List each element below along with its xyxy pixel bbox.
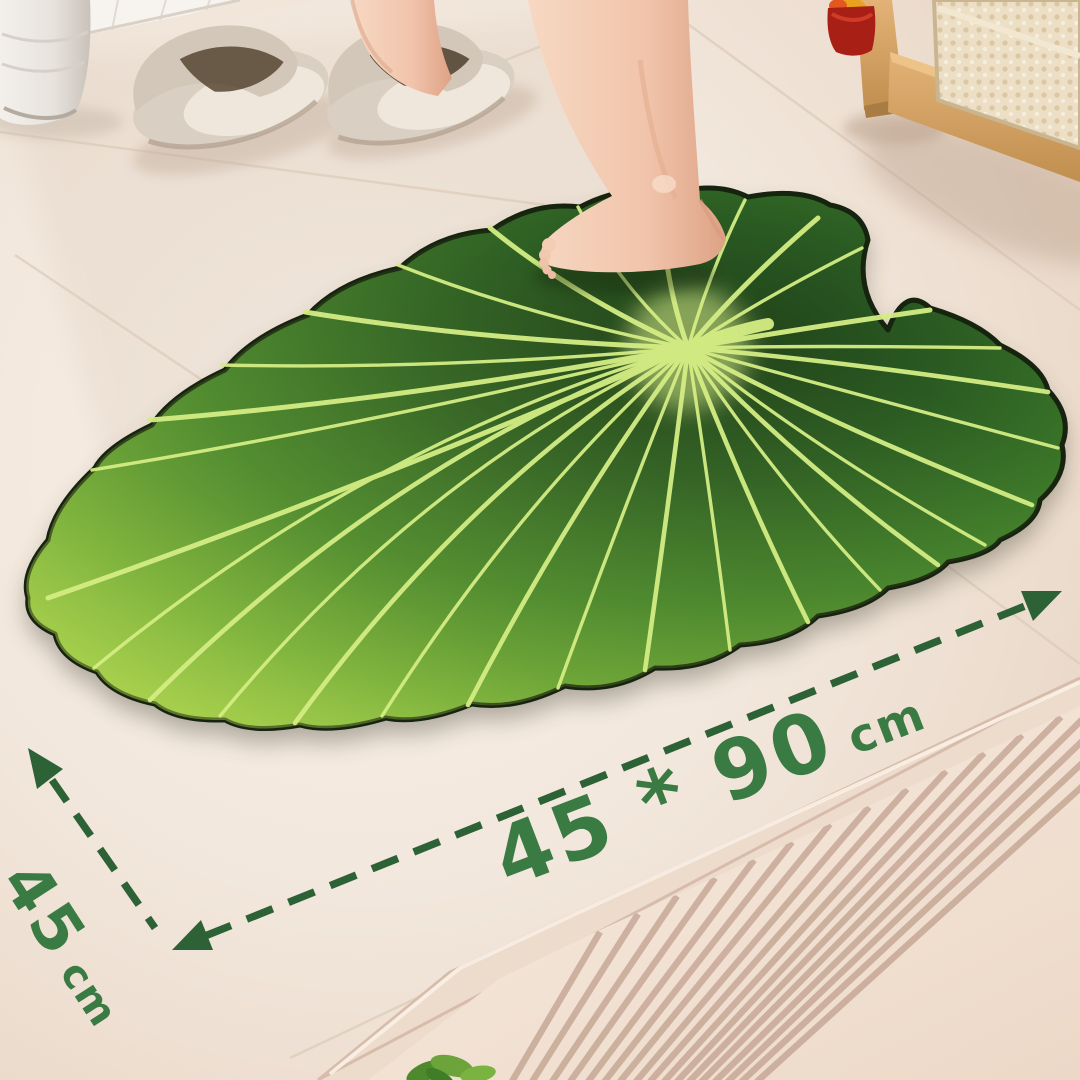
flower-pot xyxy=(827,0,875,56)
bathroom-product-photo: 45 * 90 cm 45 cm const data = JSON.parse… xyxy=(0,0,1080,1080)
scene-graphic xyxy=(0,0,1080,1080)
